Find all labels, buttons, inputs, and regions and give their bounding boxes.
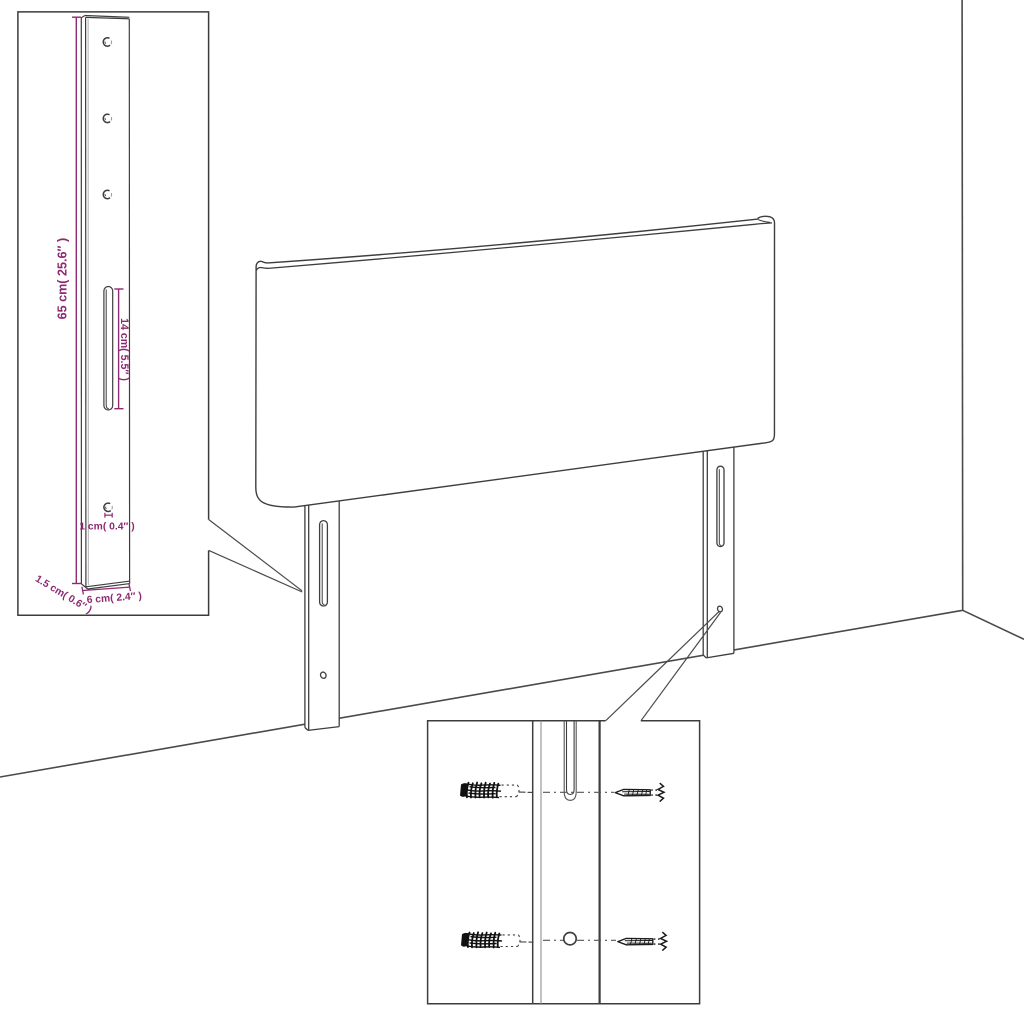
svg-text:1 cm( 0.4″ ): 1 cm( 0.4″ ) [79,521,134,532]
svg-text:65 cm( 25.6″ ): 65 cm( 25.6″ ) [56,238,70,320]
svg-text:14 cm( 5.5″ ): 14 cm( 5.5″ ) [118,318,130,381]
